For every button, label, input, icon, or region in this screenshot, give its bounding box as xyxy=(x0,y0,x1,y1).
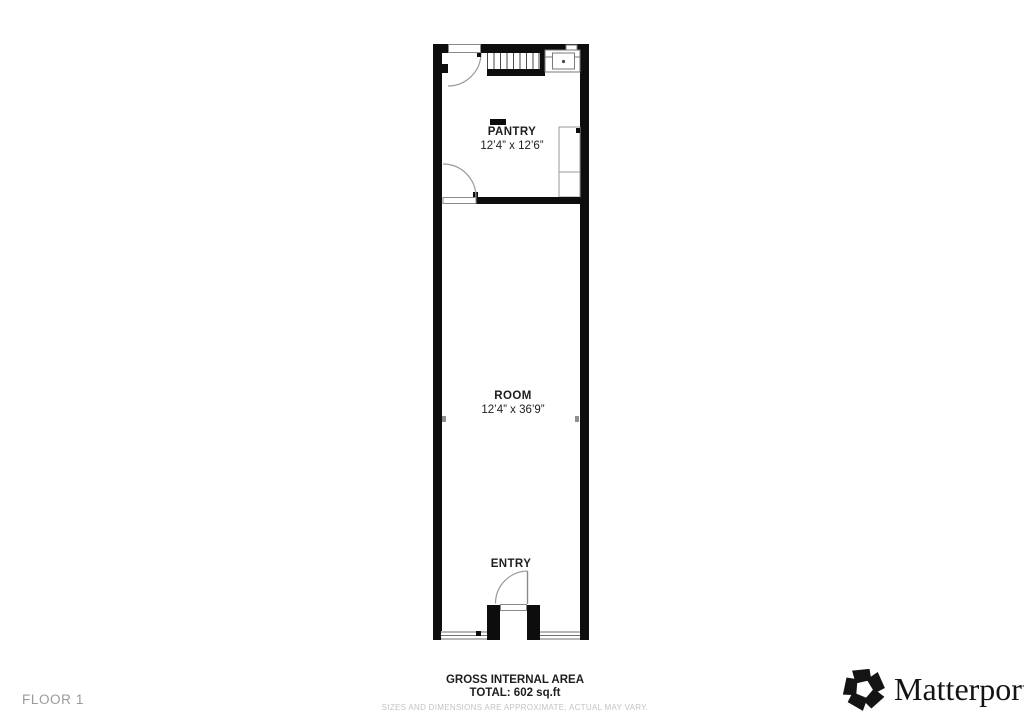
floor-plan-drawing xyxy=(0,0,1024,724)
room-name: ENTRY xyxy=(491,558,532,571)
right-wall xyxy=(580,44,589,640)
matterport-pinwheel-icon xyxy=(841,667,887,711)
entry-threshold xyxy=(501,605,527,611)
room-name: ROOM xyxy=(481,390,544,403)
room-name: PANTRY xyxy=(480,126,543,139)
room-dimensions: 12’4” x 36’9” xyxy=(481,404,544,417)
staircase xyxy=(487,53,545,76)
entry-stub-left xyxy=(487,605,500,640)
disclaimer-text: SIZES AND DIMENSIONS ARE APPROXIMATE, AC… xyxy=(382,703,649,712)
floorplan-page: PANTRY 12’4” x 12’6” ROOM 12’4” x 36’9” … xyxy=(0,0,1024,724)
area-summary: GROSS INTERNAL AREA TOTAL: 602 sq.ft SIZ… xyxy=(382,674,649,712)
pantry-feature-marker xyxy=(490,119,506,125)
total-area-value: TOTAL: 602 sq.ft xyxy=(382,687,649,700)
window-marker xyxy=(476,631,481,636)
gross-internal-area-title: GROSS INTERNAL AREA xyxy=(382,674,649,687)
door-jamb-stub xyxy=(442,64,448,73)
left-wall xyxy=(433,44,442,640)
stair-side-wall xyxy=(540,53,545,70)
door-hinge-marker xyxy=(477,53,481,57)
entry-stub-right xyxy=(527,605,540,640)
brand-name: Matterport xyxy=(894,666,1024,712)
room-dimensions: 12’4” x 12’6” xyxy=(480,140,543,153)
entry-door xyxy=(496,571,528,604)
room-label-entry: ENTRY xyxy=(491,558,532,571)
floor-label: FLOOR 1 xyxy=(22,692,84,707)
pantry-closet xyxy=(559,127,580,197)
closet-marker xyxy=(576,128,580,133)
pantry-interior-door xyxy=(443,164,476,204)
sink-drain-icon xyxy=(562,60,565,63)
window-left xyxy=(441,631,487,640)
entry-vestibule xyxy=(487,605,540,641)
room-label-room: ROOM 12’4” x 36’9” xyxy=(481,390,544,417)
window-right xyxy=(540,631,580,640)
room-label-pantry: PANTRY 12’4” x 12’6” xyxy=(480,126,543,153)
brand-logo: Matterport® xyxy=(841,666,1024,712)
stair-bottom-wall xyxy=(487,69,545,76)
